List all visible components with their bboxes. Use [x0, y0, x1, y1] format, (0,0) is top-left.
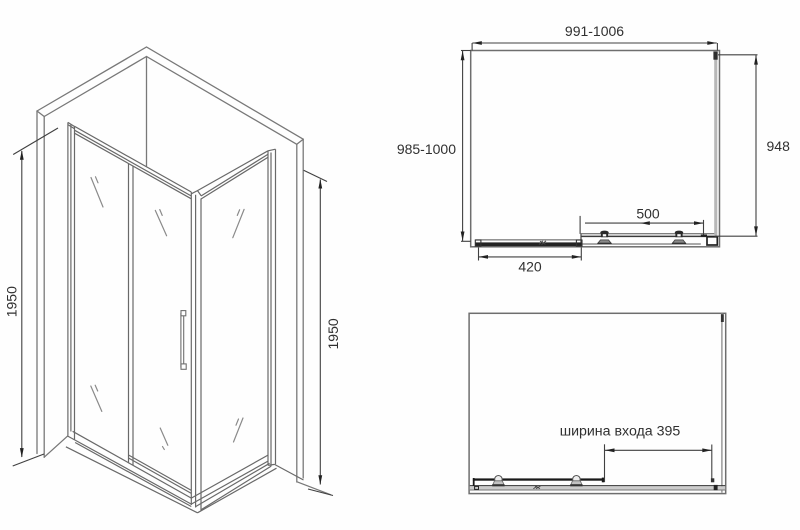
svg-text:1950: 1950 [4, 286, 20, 317]
svg-text:ширина входа 395: ширина входа 395 [560, 424, 681, 440]
svg-text:948: 948 [767, 138, 791, 154]
svg-text:985-1000: 985-1000 [397, 141, 456, 157]
svg-text:991-1006: 991-1006 [565, 23, 624, 39]
svg-text:420: 420 [518, 259, 542, 275]
svg-text:500: 500 [636, 206, 660, 222]
svg-text:1950: 1950 [325, 318, 341, 349]
